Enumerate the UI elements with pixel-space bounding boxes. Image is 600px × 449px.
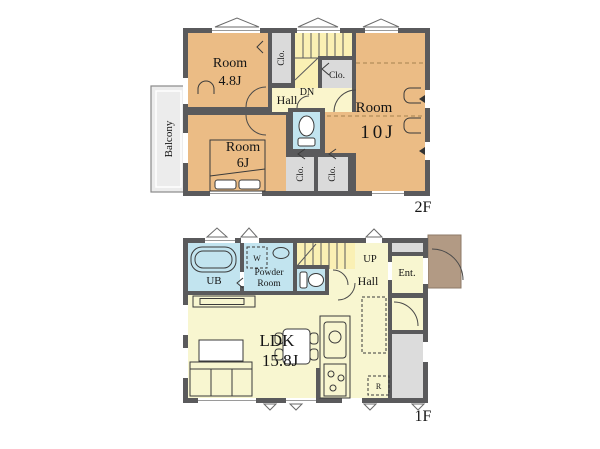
unit-bath-label: UB <box>206 275 221 287</box>
washer-label: W <box>253 254 261 263</box>
refrigerator-label: R <box>376 382 382 391</box>
hall-1f-label: Hall <box>358 274 379 288</box>
room-10j-name: Room <box>356 100 393 116</box>
closet-br-label: Clo. <box>327 166 337 181</box>
toilet-icon <box>298 116 315 146</box>
floor-2f: Balcony <box>151 18 432 216</box>
closet-bl-label: Clo. <box>295 166 305 181</box>
ldk-size: 15.8J <box>262 351 299 370</box>
room-4-8j-name: Room <box>213 56 247 71</box>
window <box>342 398 362 403</box>
balcony-label: Balcony <box>163 120 175 157</box>
entrance-label: Ent. <box>398 268 415 279</box>
entrance-closet <box>392 243 423 252</box>
hall-2f-label: Hall <box>277 93 298 107</box>
room-10j-extension <box>325 112 356 153</box>
room-6j-size: 6J <box>237 156 250 171</box>
coffee-table <box>199 340 243 361</box>
window <box>241 238 259 243</box>
floorplan-image: Balcony <box>0 0 600 449</box>
window <box>425 142 430 160</box>
window <box>425 90 430 108</box>
door-gap <box>388 262 392 280</box>
room-4-8j-size: 4.8J <box>219 74 243 89</box>
floorplan-svg: Balcony <box>0 0 600 449</box>
toilet-icon <box>300 272 324 288</box>
window <box>183 348 188 378</box>
powder-room-label-2: Room <box>257 279 281 289</box>
service-space <box>392 334 423 398</box>
window <box>366 238 382 243</box>
hall-1f <box>355 243 388 300</box>
stairs-dn-label: DN <box>300 87 314 98</box>
ldk-name: LDK <box>260 331 296 350</box>
closet-mid-label: Clo. <box>329 71 345 81</box>
entrance-porch <box>428 235 461 288</box>
kitchen-wall-stub <box>316 368 320 398</box>
floor-2f-label: 2F <box>415 199 432 216</box>
floor-1f: UB W Powder Room UP Hall Ent. LDK 15.8J … <box>183 228 463 425</box>
balcony-door <box>183 133 188 163</box>
floor-1f-label: 1F <box>415 408 432 425</box>
room-10j-size: 10J <box>360 122 395 143</box>
entrance-door-gap <box>423 258 428 284</box>
door-gap <box>423 342 428 362</box>
stairs-up-label: UP <box>363 254 377 265</box>
powder-room-label-1: Powder <box>254 268 284 278</box>
kitchen-counter <box>320 316 350 398</box>
window <box>183 78 188 104</box>
window <box>183 305 188 335</box>
room-6j-name: Room <box>226 140 260 155</box>
closet-top-label: Clo. <box>276 50 286 65</box>
